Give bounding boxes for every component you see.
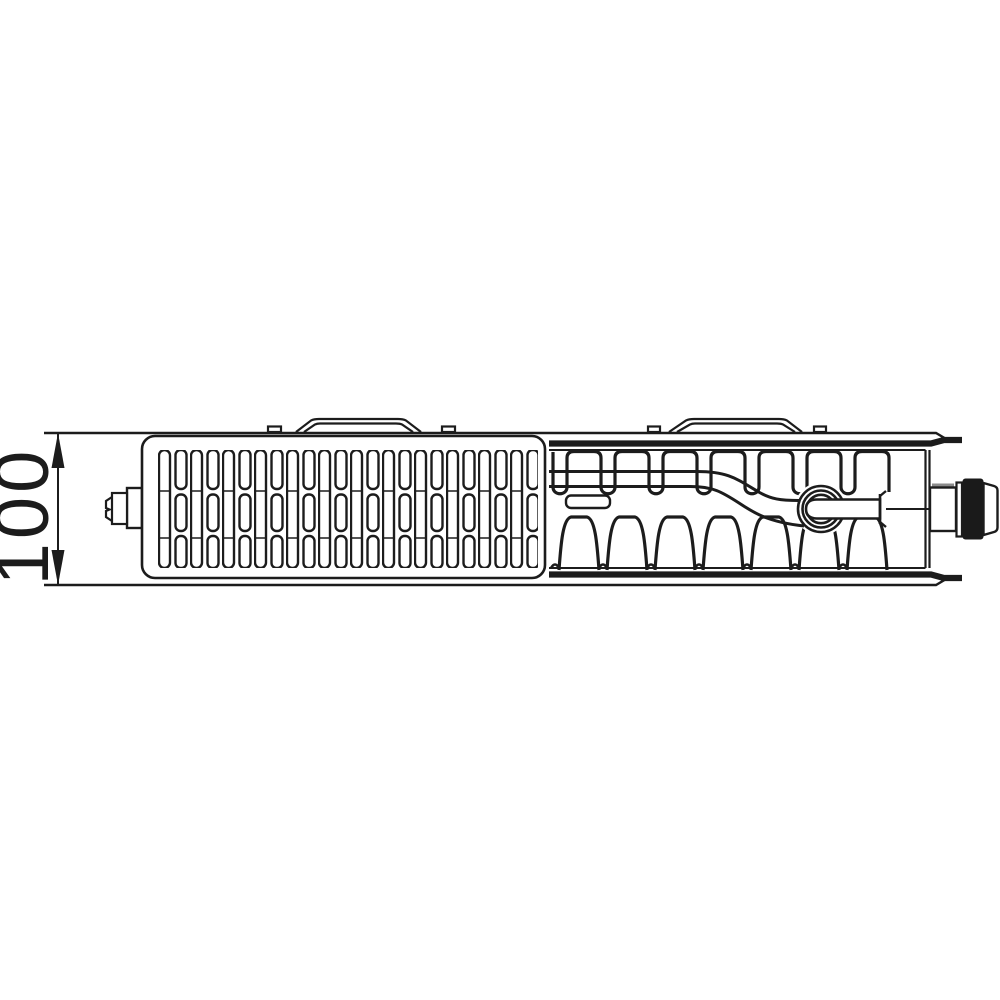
dimension-value: 100 [0, 447, 65, 586]
front-panel-bottom-band [549, 575, 962, 579]
valve-collar [957, 483, 963, 537]
thermostatic-valve-connection [930, 479, 998, 540]
vent-plug [106, 488, 142, 528]
valve-cap [984, 483, 998, 535]
valve-neck [930, 488, 956, 532]
technical-drawing-canvas: 100 [0, 0, 1000, 1000]
front-panel-top-band [549, 440, 962, 444]
mounting-bracket-left [268, 419, 455, 432]
radiator-top-view-drawing: 100 [0, 0, 1000, 1000]
mounting-bracket-right [648, 419, 826, 432]
grille-slots [158, 450, 538, 568]
bottom-extension-line [44, 579, 947, 586]
pipe-inlet-bracket [566, 496, 610, 509]
grille-panel [142, 436, 545, 578]
valve-grip [963, 479, 984, 540]
